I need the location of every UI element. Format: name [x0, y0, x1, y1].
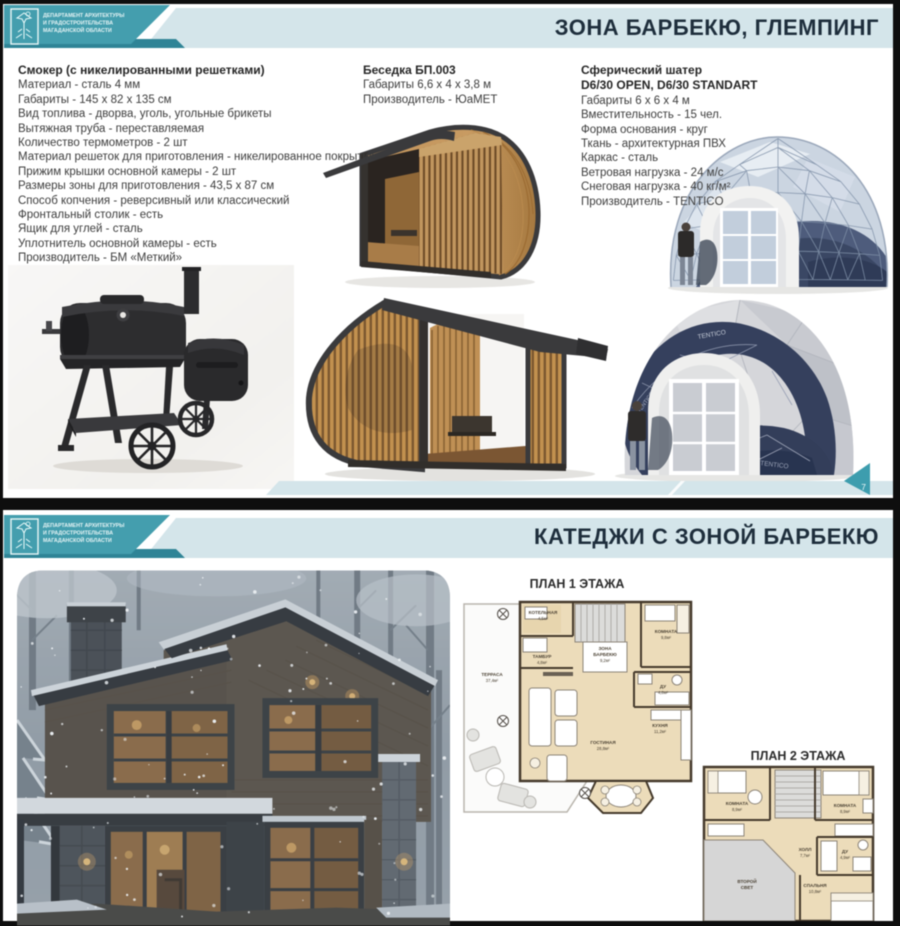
- svg-text:МАГАДАНСКОЙ ОБЛАСТИ: МАГАДАНСКОЙ ОБЛАСТИ: [43, 26, 112, 34]
- svg-text:10,8м²: 10,8м²: [809, 889, 822, 894]
- svg-text:7: 7: [861, 482, 866, 492]
- svg-text:28,8м²: 28,8м²: [597, 746, 610, 751]
- svg-text:КОТЕЛЬНАЯ: КОТЕЛЬНАЯ: [529, 610, 558, 615]
- svg-text:ГОСТИНАЯ: ГОСТИНАЯ: [590, 740, 615, 745]
- svg-text:ЗОНА: ЗОНА: [598, 646, 612, 651]
- svg-text:ПЛАН 2 ЭТАЖА: ПЛАН 2 ЭТАЖА: [751, 749, 846, 763]
- svg-text:ДЕПАРТАМЕНТ АРХИТЕКТУРЫ: ДЕПАРТАМЕНТ АРХИТЕКТУРЫ: [43, 13, 125, 19]
- svg-text:И ГРАДОСТРОИТЕЛЬСТВА: И ГРАДОСТРОИТЕЛЬСТВА: [43, 531, 113, 537]
- svg-text:КОМНАТА: КОМНАТА: [726, 801, 749, 806]
- svg-text:4,8м²: 4,8м²: [658, 690, 669, 695]
- svg-text:И ГРАДОСТРОИТЕЛЬСТВА: И ГРАДОСТРОИТЕЛЬСТВА: [43, 21, 113, 27]
- svg-text:ХОЛЛ: ХОЛЛ: [799, 847, 812, 852]
- svg-text:7,7м²: 7,7м²: [800, 853, 811, 858]
- svg-text:11,2м²: 11,2м²: [654, 729, 667, 734]
- svg-text:8,9м²: 8,9м²: [732, 807, 743, 812]
- svg-text:37,4м²: 37,4м²: [486, 678, 499, 683]
- svg-text:ТАМБУР: ТАМБУР: [533, 654, 552, 659]
- svg-text:ВТОРОЙ: ВТОРОЙ: [737, 877, 756, 884]
- svg-text:9,8м²: 9,8м²: [661, 635, 672, 640]
- svg-text:СПАЛЬНЯ: СПАЛЬНЯ: [803, 883, 826, 888]
- svg-text:ДУ: ДУ: [660, 684, 666, 689]
- svg-text:СВЕТ: СВЕТ: [741, 885, 754, 890]
- svg-text:ПЛАН 1 ЭТАЖА: ПЛАН 1 ЭТАЖА: [530, 577, 625, 591]
- svg-text:4,5м²: 4,5м²: [538, 616, 549, 621]
- svg-text:КОМНАТА: КОМНАТА: [655, 629, 678, 634]
- svg-text:БАРБЕКЮ: БАРБЕКЮ: [593, 652, 617, 657]
- svg-text:4,9м²: 4,9м²: [840, 855, 851, 860]
- svg-text:ТЕРРАСА: ТЕРРАСА: [481, 672, 503, 677]
- svg-text:КУХНЯ: КУХНЯ: [652, 723, 667, 728]
- svg-text:ДЕПАРТАМЕНТ АРХИТЕКТУРЫ: ДЕПАРТАМЕНТ АРХИТЕКТУРЫ: [43, 523, 125, 529]
- svg-text:МАГАДАНСКОЙ ОБЛАСТИ: МАГАДАНСКОЙ ОБЛАСТИ: [43, 536, 112, 544]
- svg-text:9,2м²: 9,2м²: [600, 658, 611, 663]
- svg-text:8,9м²: 8,9м²: [840, 809, 851, 814]
- svg-text:КОМНАТА: КОМНАТА: [834, 803, 857, 808]
- svg-text:ДУ: ДУ: [842, 849, 848, 854]
- svg-text:4,8м²: 4,8м²: [537, 660, 548, 665]
